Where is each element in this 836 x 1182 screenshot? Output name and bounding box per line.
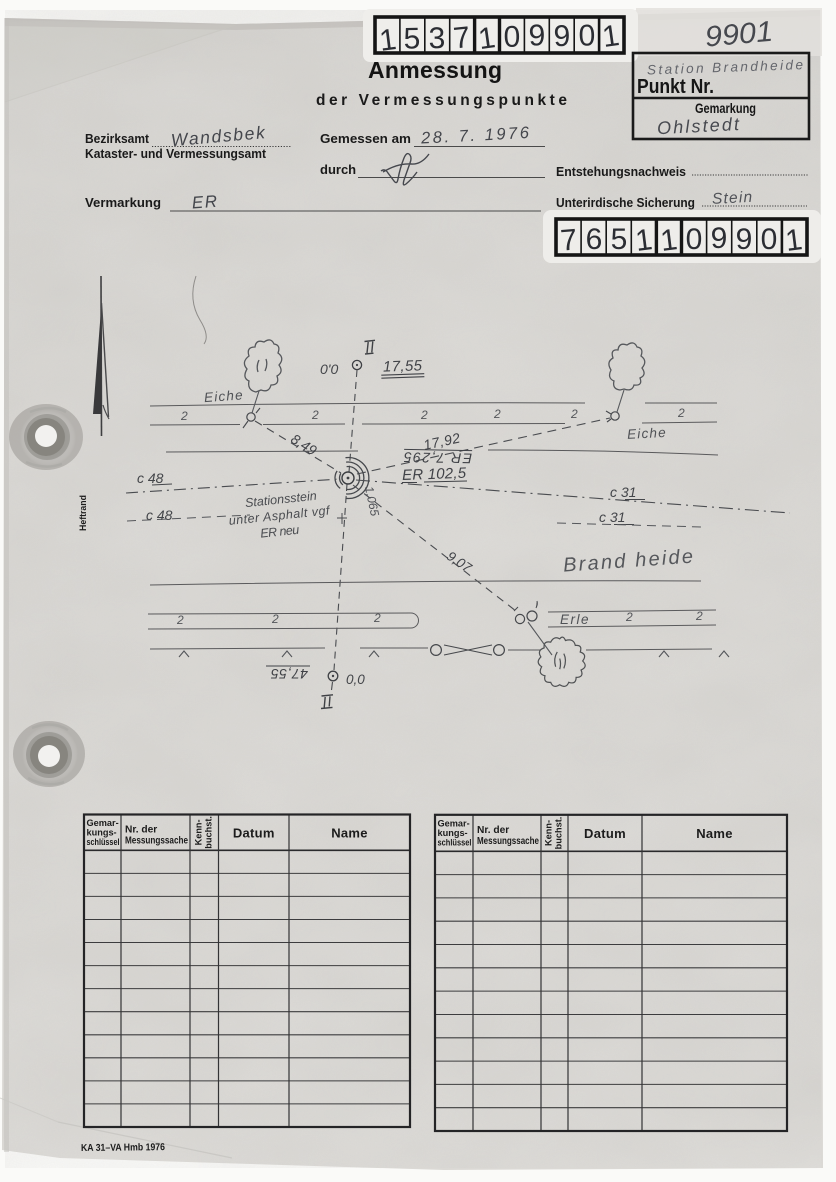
svg-text:2: 2 <box>420 408 428 422</box>
svg-text:0: 0 <box>686 223 703 256</box>
svg-text:ER: ER <box>191 192 219 213</box>
svg-text:7: 7 <box>452 21 472 56</box>
svg-text:9: 9 <box>711 222 728 255</box>
svg-text:der Vermessungspunkte: der Vermessungspunkte <box>316 92 567 109</box>
svg-text:2: 2 <box>311 408 319 422</box>
svg-text:0,0: 0,0 <box>346 672 365 687</box>
svg-text:17,55: 17,55 <box>383 357 423 375</box>
svg-text:3: 3 <box>428 22 445 55</box>
svg-text:5: 5 <box>611 223 628 256</box>
svg-text:5: 5 <box>403 22 420 55</box>
svg-text:0: 0 <box>761 223 778 256</box>
svg-text:2: 2 <box>570 407 578 421</box>
svg-text:Punkt Nr.: Punkt Nr. <box>637 76 714 98</box>
svg-text:Gemar-kungs-schlüssel: Gemar-kungs-schlüssel <box>87 818 120 847</box>
svg-text:Eiche: Eiche <box>204 387 245 405</box>
svg-text:Unterirdische Sicherung: Unterirdische Sicherung <box>556 195 695 210</box>
svg-text:9: 9 <box>736 223 753 256</box>
svg-text:Erle: Erle <box>560 612 590 627</box>
svg-text:0: 0 <box>503 21 520 54</box>
svg-text:Vermarkung: Vermarkung <box>85 195 161 210</box>
svg-text:Bezirksamt: Bezirksamt <box>85 131 150 146</box>
svg-text:2: 2 <box>271 612 279 626</box>
svg-text:2: 2 <box>695 609 703 623</box>
svg-text:Kenn-buchst.: Kenn-buchst. <box>544 817 564 850</box>
svg-text:2: 2 <box>493 407 501 421</box>
svg-text:9901: 9901 <box>704 16 775 54</box>
svg-text:durch: durch <box>320 162 356 177</box>
svg-text:Gemar-kungs-schlüssel: Gemar-kungs-schlüssel <box>438 818 472 847</box>
svg-text:Kenn-buchst.: Kenn-buchst. <box>193 816 213 849</box>
svg-text:c 48: c 48 <box>146 507 173 523</box>
svg-text:c 48: c 48 <box>137 470 164 486</box>
svg-text:Entstehungsnachweis: Entstehungsnachweis <box>556 164 686 179</box>
svg-text:2: 2 <box>625 610 633 624</box>
svg-text:KA 31–VA Hmb 1976: KA 31–VA Hmb 1976 <box>81 1142 165 1154</box>
svg-text:Anmessung: Anmessung <box>368 57 502 83</box>
svg-text:Datum: Datum <box>584 826 626 841</box>
svg-text:c 31: c 31 <box>610 484 636 500</box>
svg-text:Eiche: Eiche <box>627 425 668 442</box>
svg-text:2: 2 <box>176 613 184 627</box>
svg-text:Heftrand: Heftrand <box>78 495 89 531</box>
svg-text:2: 2 <box>373 611 381 625</box>
svg-text:2: 2 <box>677 406 685 420</box>
svg-text:9: 9 <box>528 19 545 52</box>
svg-text:0'0: 0'0 <box>320 361 338 377</box>
svg-text:7: 7 <box>559 223 579 257</box>
svg-text:2: 2 <box>180 409 188 423</box>
svg-text:Datum: Datum <box>233 825 275 840</box>
svg-text:Stein: Stein <box>712 189 754 208</box>
svg-text:6: 6 <box>586 223 603 256</box>
svg-text:Gemessen am: Gemessen am <box>320 131 411 146</box>
svg-text:9: 9 <box>553 20 570 53</box>
svg-text:0: 0 <box>578 19 595 52</box>
svg-text:Name: Name <box>696 826 733 841</box>
svg-text:47,55: 47,55 <box>270 666 308 682</box>
svg-text:c 31: c 31 <box>599 509 625 525</box>
svg-text:Name: Name <box>331 825 368 840</box>
